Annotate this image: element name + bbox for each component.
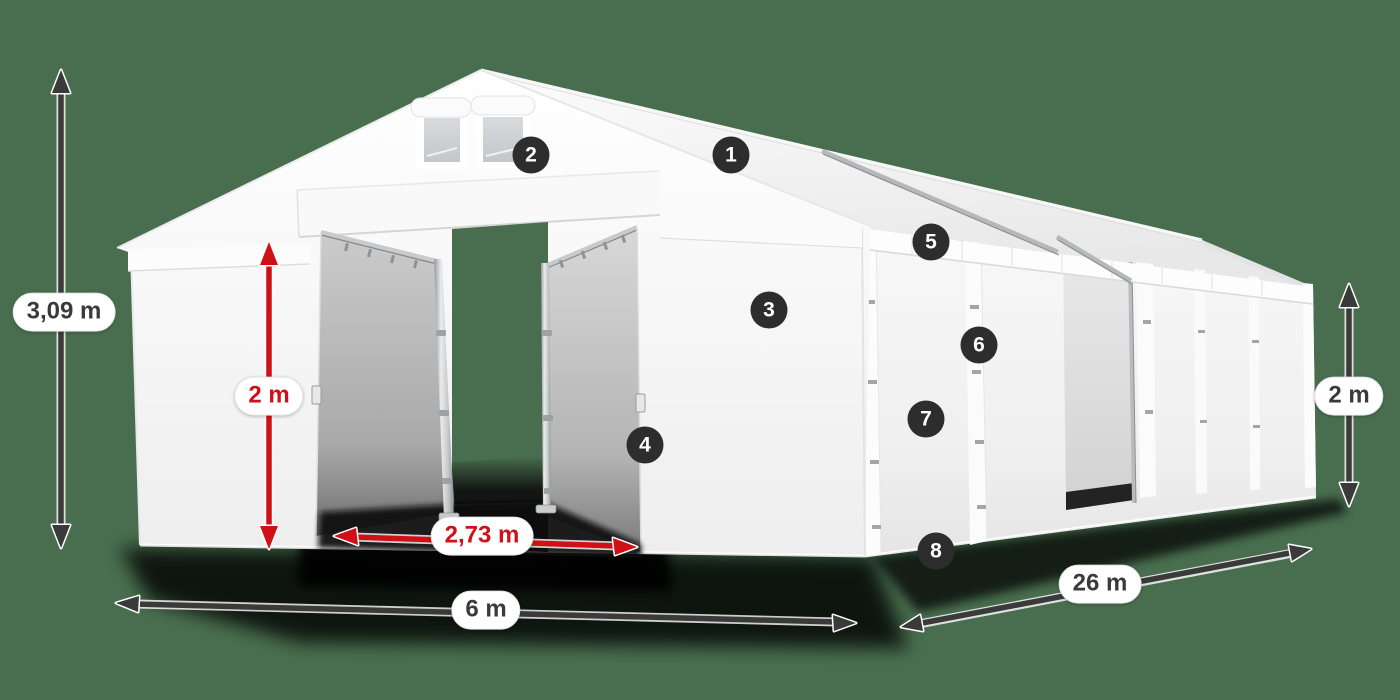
door-height-label: 2 m	[234, 377, 303, 416]
right-door-latch	[636, 394, 645, 412]
tent-product-visualization: 3,09 m 2 m 2,73 m 6 m 26 m 2 m 1 2 3 4 5…	[0, 0, 1400, 700]
callout-6[interactable]: 6	[961, 327, 998, 364]
door-width-label: 2,73 m	[431, 517, 534, 556]
pole-foot	[536, 505, 556, 513]
callout-5[interactable]: 5	[913, 224, 950, 261]
callout-4[interactable]: 4	[627, 427, 664, 464]
total-height-label: 3,09 m	[13, 293, 116, 332]
vent-flap-roll	[411, 98, 471, 117]
callout-8[interactable]: 8	[918, 533, 955, 570]
front-width-label: 6 m	[451, 591, 520, 630]
front-doors	[312, 222, 645, 558]
left-door-opening	[316, 232, 455, 536]
side-door-opening	[1063, 252, 1136, 510]
callout-1[interactable]: 1	[713, 137, 750, 174]
vent-flap-roll	[471, 96, 535, 115]
callout-2[interactable]: 2	[513, 137, 550, 174]
right-door-tarp	[545, 227, 641, 553]
tent-illustration	[0, 0, 1400, 700]
callout-7[interactable]: 7	[908, 401, 945, 438]
callout-3[interactable]: 3	[751, 292, 788, 329]
left-door-tarp	[316, 232, 455, 536]
side-height-label: 2 m	[1314, 377, 1383, 416]
length-label: 26 m	[1059, 565, 1142, 604]
left-door-latch	[312, 386, 321, 404]
left-roof-vent	[411, 98, 471, 169]
right-door-opening	[545, 227, 641, 553]
